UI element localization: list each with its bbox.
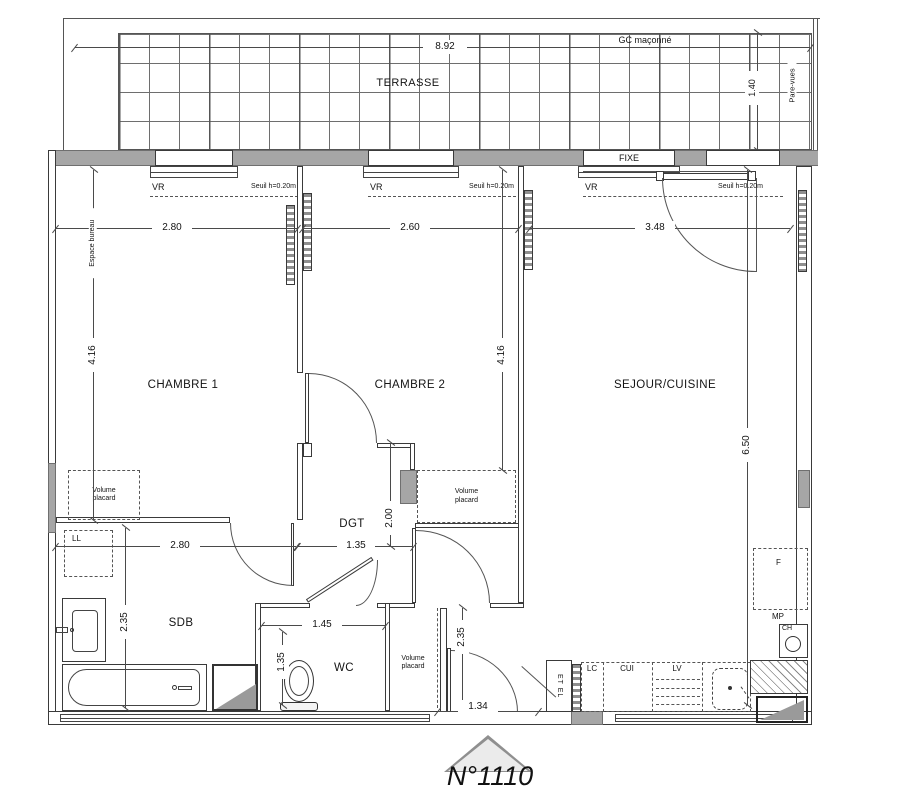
dim-ch1-width: 2.80	[152, 221, 192, 235]
closet-chambre1-label: Volume placard	[84, 487, 124, 504]
dim-dgt-depth: 2.00	[383, 501, 397, 535]
dim-ch1-depth: 4.16	[86, 338, 100, 372]
wall-wc-north-left	[255, 603, 310, 608]
kitchen-lc-label: LC	[578, 664, 606, 673]
seuil-label-sejour: Seuil h=0.20m	[718, 183, 763, 190]
wall-ch2-sejour	[518, 166, 524, 603]
dim-dgt-width: 1.35	[337, 539, 375, 553]
dishwasher-rack-4	[656, 704, 700, 705]
dim-wc-depth: 1.35	[275, 645, 289, 679]
dishwasher-rack-2	[656, 688, 700, 689]
wall-ch1-ch2	[297, 166, 303, 373]
washbasin-bowl	[72, 610, 98, 652]
bathtub-faucet-dot	[172, 685, 177, 690]
exterior-wall-left-pier	[48, 463, 56, 533]
window-opening-bay	[706, 150, 780, 166]
dim-ch2-width: 2.60	[390, 221, 430, 235]
wall-ch2-south-post	[303, 443, 312, 457]
room-label-chambre2: CHAMBRE 2	[355, 379, 465, 391]
pillar-closet2	[400, 470, 417, 504]
bottom-wall-pier	[571, 711, 603, 725]
closet-entry-label: Volume placard	[391, 655, 435, 672]
window-frame-ch2	[363, 166, 459, 178]
vr-label-ch2: VR	[370, 182, 383, 192]
wall-wc-north-right	[377, 603, 415, 608]
vr-row-sejour: VR Seuil h=0.20m	[583, 182, 783, 197]
door-swing-sdb	[230, 523, 293, 586]
wall-dgt-south-east	[490, 603, 524, 608]
water-heater-symbol	[785, 636, 801, 652]
seuil-label-ch2: Seuil h=0.20m	[469, 183, 514, 190]
exterior-wall-right-pier	[798, 470, 810, 508]
fridge-label: F	[776, 558, 781, 567]
dim-line-ch2-depth	[502, 170, 503, 470]
wall-wc-placard	[385, 603, 390, 711]
radiator-4	[798, 190, 807, 272]
kitchen-drainer	[750, 660, 808, 694]
exterior-wall-left	[48, 150, 56, 725]
closet-chambre2: Volume placard	[417, 470, 516, 523]
dim-sdb-depth: 2.35	[118, 605, 132, 639]
terrace-boundary-left	[63, 18, 64, 150]
gc-maconne-label: GC maçonné	[585, 35, 705, 45]
window-opening-ch1	[155, 150, 233, 166]
room-label-chambre1: CHAMBRE 1	[128, 379, 238, 391]
window-frame-ch1	[150, 166, 238, 178]
room-label-dgt: DGT	[330, 518, 374, 530]
window-opening-ch2	[368, 150, 454, 166]
vr-row-ch1: VR Seuil h=0.20m	[150, 182, 298, 197]
unit-number: N°1110	[410, 761, 570, 792]
dim-placard-depth: 2.35	[455, 620, 469, 654]
door-swing-wc	[356, 560, 378, 606]
vr-row-ch2: VR Seuil h=0.20m	[368, 182, 516, 197]
placard-entry-dashed-edge	[437, 608, 438, 708]
vr-label-sejour: VR	[585, 182, 598, 192]
washing-machine-label: LL	[72, 534, 81, 543]
pare-vues-screen	[813, 18, 818, 150]
dim-terrace-depth: 1.40	[745, 71, 759, 105]
dishwasher-rack-3	[656, 696, 700, 697]
dim-entry-width: 1.34	[458, 700, 498, 714]
dim-sej-depth: 6.50	[740, 428, 754, 462]
mp-label: MP	[772, 612, 784, 621]
dishwasher-rack-1	[656, 679, 700, 680]
kitchen-cui-label: CUI	[610, 664, 644, 673]
washbasin-faucet	[56, 627, 68, 633]
washbasin-faucet-dot	[70, 628, 74, 632]
window-opening-fixe: FIXE	[583, 150, 675, 166]
electrical-panel: ET EL	[546, 660, 572, 712]
wall-closet2-west	[410, 443, 415, 470]
dim-wc-width: 1.45	[302, 618, 342, 632]
room-label-wc: WC	[322, 662, 366, 674]
vr-label-ch1: VR	[152, 182, 165, 192]
water-heater-label: CH	[782, 625, 792, 633]
espace-bureau-label: Espace bureau	[89, 208, 97, 278]
closet-chambre1: Volume placard	[68, 470, 140, 520]
kitchen-sink-drain	[728, 686, 732, 690]
terrace-label: TERRASSE	[358, 77, 458, 89]
terrace-boundary-top	[63, 18, 820, 19]
door-swing-sejour	[416, 530, 490, 603]
seuil-label-ch1: Seuil h=0.20m	[251, 183, 296, 190]
bay-rail	[583, 171, 755, 172]
kitchen-divider-2	[652, 662, 653, 712]
kitchen-divider-3	[702, 662, 703, 712]
radiator-2	[303, 193, 312, 271]
bathtub-faucet	[178, 686, 192, 690]
dim-terrace-width: 8.92	[423, 40, 467, 54]
room-label-sdb: SDB	[159, 617, 203, 629]
wall-entry	[440, 608, 447, 712]
pare-vues-label: Pare-vues	[788, 57, 797, 115]
bottom-window-band-left	[60, 714, 430, 722]
kitchen-lv-label: LV	[660, 664, 694, 673]
electrical-panel-label: ET EL	[555, 674, 563, 698]
radiator-1	[286, 205, 295, 285]
floor-plan: 8.92 TERRASSE GC maçonné 1.40 Pare-vues …	[0, 0, 902, 800]
wall-closet2-south	[415, 523, 524, 528]
room-label-sejour: SEJOUR/CUISINE	[595, 379, 735, 391]
fixe-label: FIXE	[619, 153, 639, 163]
dim-ch2-depth: 4.16	[495, 338, 509, 372]
closet-chambre2-label: Volume placard	[447, 488, 487, 505]
dim-sdb-width: 2.80	[160, 539, 200, 553]
dim-sej-width: 3.48	[635, 221, 675, 235]
toilet-bowl-inner	[289, 666, 309, 696]
